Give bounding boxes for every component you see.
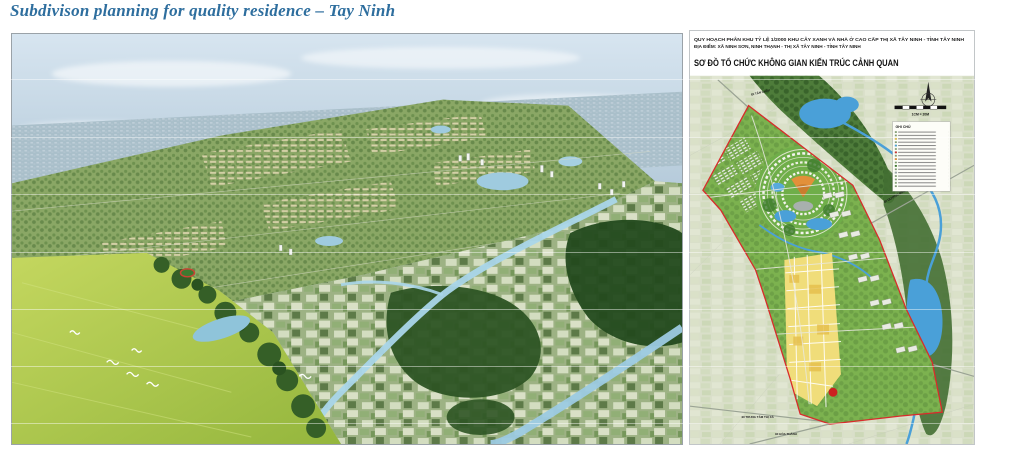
- map-body: ĐI DƯƠNG MINH CHÂU ĐI TÂN CHÂU ĐI TRUNG …: [690, 76, 974, 444]
- stadium: [180, 269, 194, 277]
- document-page: Subdivison planning for quality residenc…: [0, 0, 1024, 464]
- road-label-trung-tam-thi-xa: ĐI TRUNG TÂM THỊ XÃ: [742, 414, 775, 419]
- page-title: Subdivison planning for quality residenc…: [10, 1, 395, 21]
- master-plan-figure[interactable]: QUY HOẠCH PHÂN KHU TỶ LỆ 1/2000 KHU CÂY …: [689, 30, 975, 445]
- road-label-hoa-thanh: ĐI HÒA THÀNH: [775, 431, 796, 436]
- map-header-line2: ĐỊA ĐIỂM: XÃ NINH SƠN, NINH THẠNH - THỊ …: [694, 43, 861, 50]
- scale-label: 1CM = 20M: [912, 113, 930, 117]
- legend-box: GHI CHÚ: [893, 122, 951, 192]
- legend-title: GHI CHÚ: [896, 124, 911, 129]
- map-header: QUY HOẠCH PHÂN KHU TỶ LỆ 1/2000 KHU CÂY …: [690, 31, 974, 76]
- aerial-rendering-figure[interactable]: [11, 33, 683, 445]
- legend-rows: [895, 131, 949, 189]
- aerial-rendering-art: [12, 34, 682, 444]
- landmark-building: [829, 388, 838, 397]
- master-plan-art: QUY HOẠCH PHÂN KHU TỶ LỆ 1/2000 KHU CÂY …: [690, 31, 974, 444]
- map-header-title: SƠ ĐỒ TỔ CHỨC KHÔNG GIAN KIẾN TRÚC CẢNH …: [694, 57, 899, 68]
- forest-blob: [447, 399, 515, 435]
